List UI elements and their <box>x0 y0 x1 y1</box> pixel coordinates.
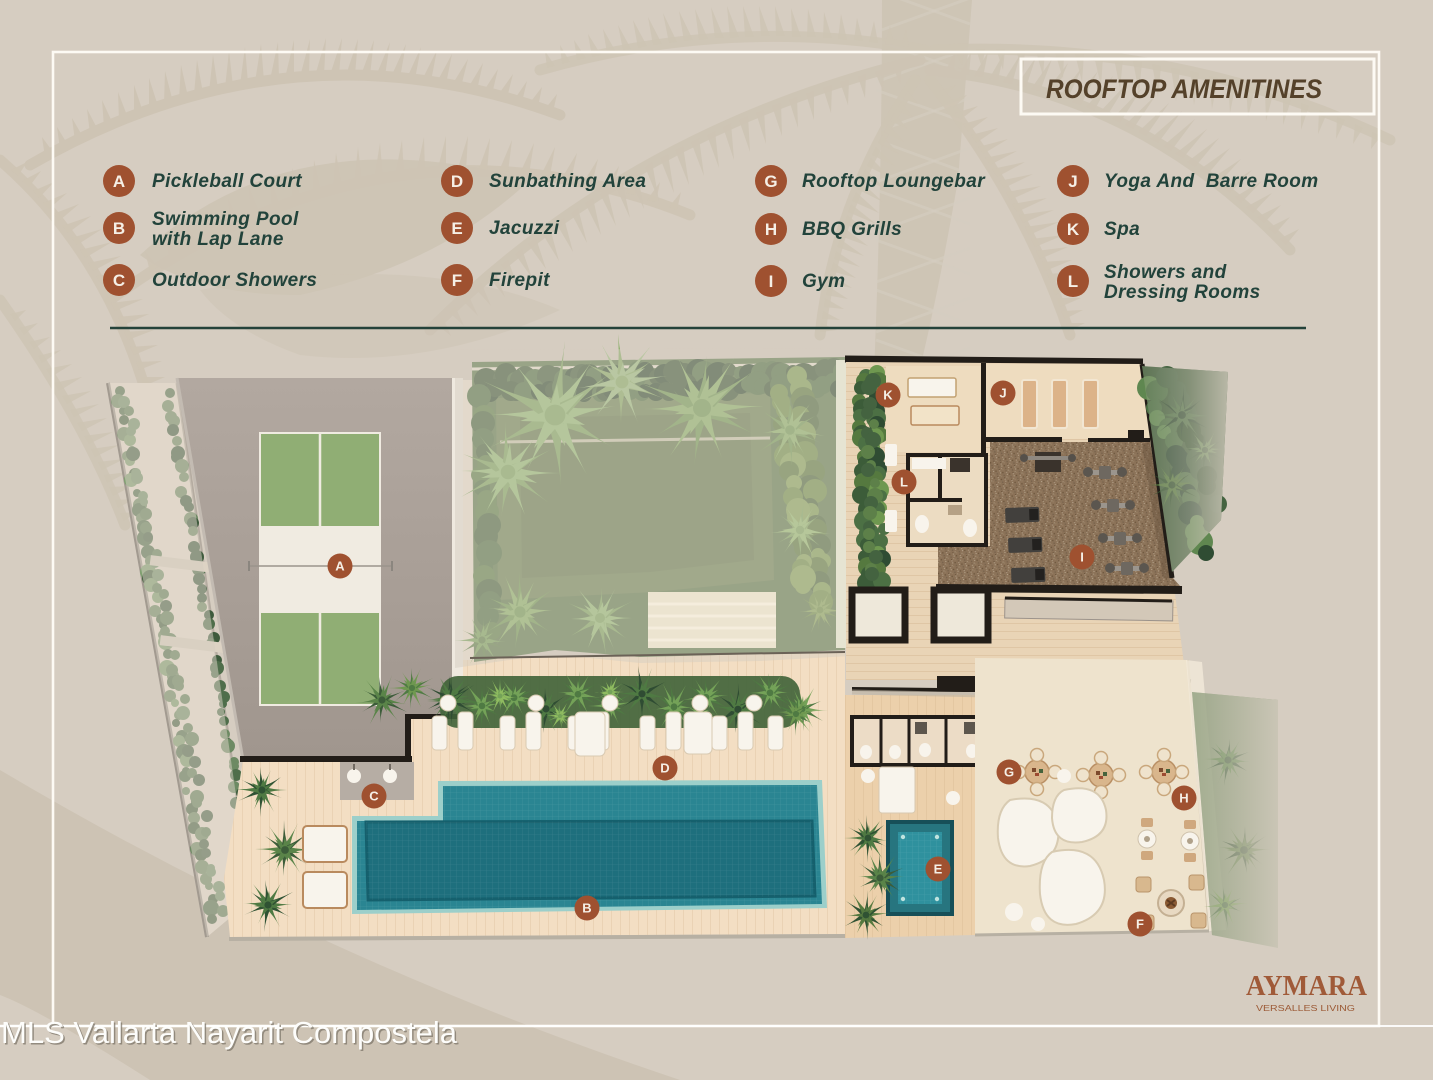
svg-text:Dressing Rooms: Dressing Rooms <box>1104 282 1261 303</box>
svg-text:D: D <box>660 761 669 776</box>
svg-text:Rooftop Loungebar: Rooftop Loungebar <box>802 171 986 192</box>
svg-text:L: L <box>900 475 908 490</box>
svg-text:VERSALLES LIVING: VERSALLES LIVING <box>1256 1004 1355 1013</box>
svg-text:E: E <box>451 219 462 238</box>
svg-text:Showers and: Showers and <box>1104 262 1227 283</box>
svg-text:Spa: Spa <box>1104 219 1140 240</box>
svg-text:Outdoor Showers: Outdoor Showers <box>152 270 317 291</box>
svg-text:ROOFTOP AMENITINES: ROOFTOP AMENITINES <box>1046 74 1322 104</box>
svg-text:I: I <box>1080 550 1084 565</box>
svg-text:Gym: Gym <box>802 271 845 292</box>
svg-text:Firepit: Firepit <box>489 270 550 291</box>
svg-text:E: E <box>934 862 943 877</box>
svg-text:H: H <box>765 220 777 239</box>
svg-text:Swimming Pool: Swimming Pool <box>152 209 299 230</box>
svg-text:with Lap Lane: with Lap Lane <box>152 229 284 250</box>
svg-text:L: L <box>1068 272 1078 291</box>
svg-text:A: A <box>335 559 345 574</box>
svg-text:J: J <box>999 386 1006 401</box>
svg-text:F: F <box>452 271 462 290</box>
svg-text:B: B <box>582 901 591 916</box>
svg-text:F: F <box>1136 917 1144 932</box>
svg-text:MLS Vallarta Nayarit Compostel: MLS Vallarta Nayarit Compostela <box>1 1015 458 1050</box>
svg-text:K: K <box>883 388 893 403</box>
svg-text:G: G <box>1004 765 1014 780</box>
svg-text:J: J <box>1068 172 1077 191</box>
svg-text:C: C <box>113 271 125 290</box>
svg-text:A: A <box>113 172 125 191</box>
svg-text:Jacuzzi: Jacuzzi <box>489 218 560 239</box>
svg-text:AYMARA: AYMARA <box>1246 971 1368 1002</box>
svg-text:H: H <box>1179 791 1188 806</box>
svg-text:Sunbathing Area: Sunbathing Area <box>489 171 646 192</box>
svg-text:I: I <box>769 272 774 291</box>
svg-text:B: B <box>113 219 125 238</box>
svg-text:Pickleball Court: Pickleball Court <box>152 171 302 192</box>
svg-text:D: D <box>451 172 463 191</box>
svg-text:BBQ Grills: BBQ Grills <box>802 219 902 240</box>
svg-text:Yoga And Barre Room: Yoga And Barre Room <box>1104 171 1319 192</box>
svg-text:K: K <box>1067 220 1080 239</box>
svg-text:C: C <box>369 789 379 804</box>
svg-text:G: G <box>764 172 777 191</box>
